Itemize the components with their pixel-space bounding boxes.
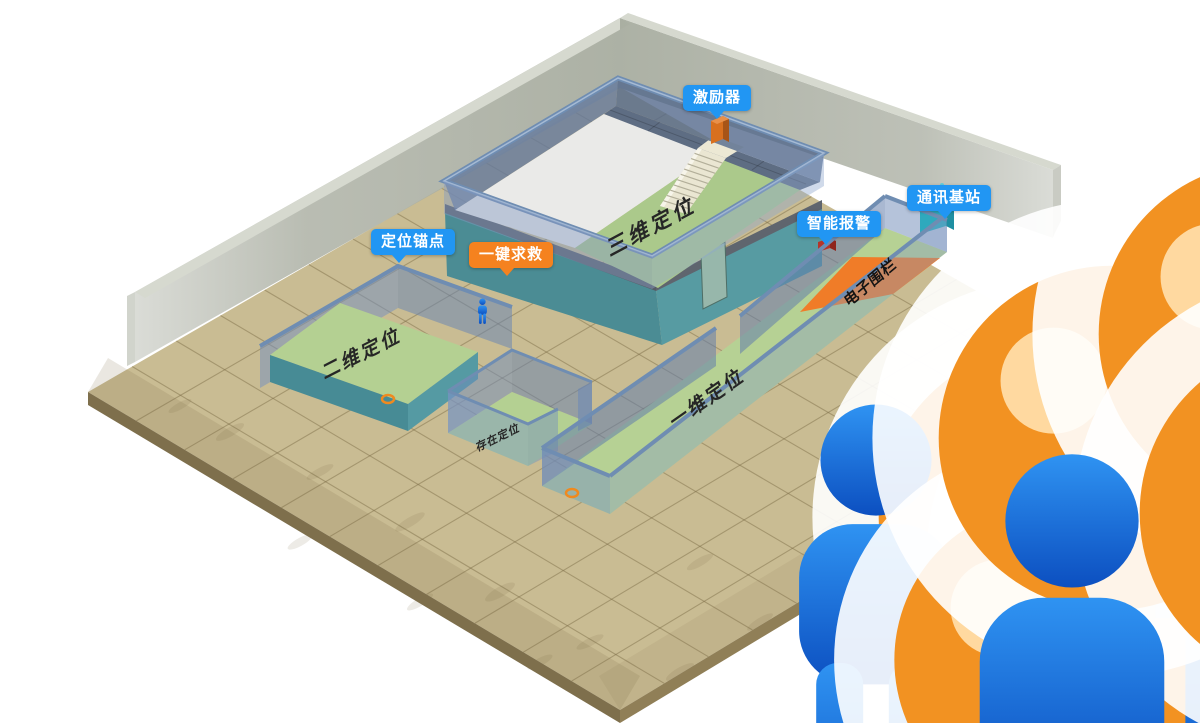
badge-anchor: 定位锚点 [371,229,455,255]
perimeter-wall-left-end [127,292,135,366]
badge-sos: 一键求救 [469,242,553,268]
positioning-demo-scene: 三维定位 二维定位 存在定位 一维定位 电子围栏 激励器 通讯基站 智能报警 定… [0,0,1200,723]
badge-exciter: 激励器 [683,85,751,111]
badge-smart-alarm: 智能报警 [797,211,881,237]
scene-canvas [0,0,1200,723]
badge-comm-base: 通讯基站 [907,185,991,211]
